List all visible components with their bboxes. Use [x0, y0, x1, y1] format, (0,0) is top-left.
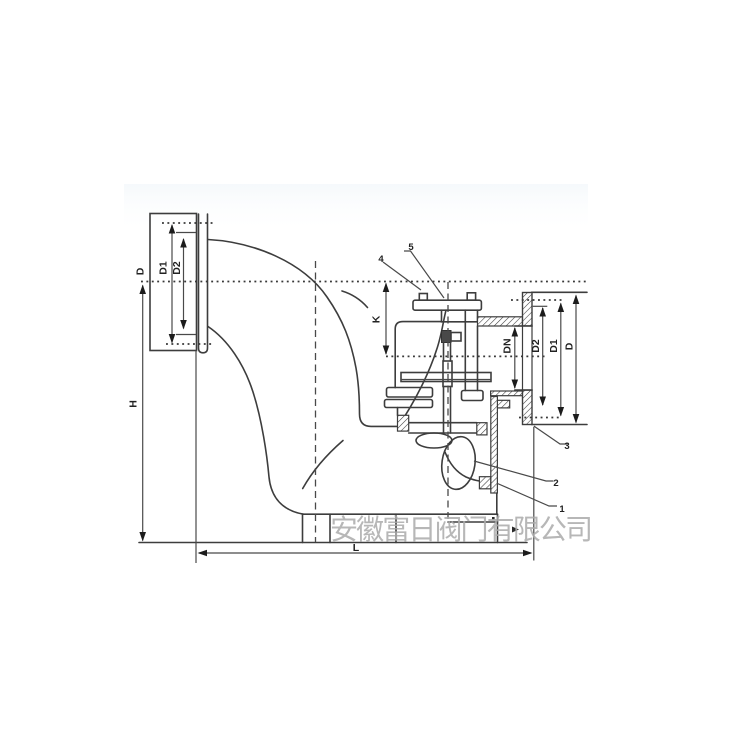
svg-text:K: K — [371, 315, 383, 323]
svg-text:H: H — [128, 400, 140, 408]
svg-text:5: 5 — [408, 242, 414, 253]
svg-text:3: 3 — [564, 441, 569, 452]
svg-text:D: D — [135, 267, 147, 275]
svg-text:安徽富日阀门有限公司: 安徽富日阀门有限公司 — [330, 514, 593, 545]
svg-text:D2: D2 — [171, 261, 183, 275]
svg-text:2: 2 — [553, 478, 558, 489]
svg-text:D: D — [564, 342, 576, 350]
svg-text:D2: D2 — [530, 339, 542, 353]
svg-text:D1: D1 — [548, 339, 560, 353]
svg-text:DN: DN — [502, 338, 514, 353]
svg-text:D1: D1 — [158, 261, 170, 275]
svg-text:4: 4 — [378, 254, 384, 265]
